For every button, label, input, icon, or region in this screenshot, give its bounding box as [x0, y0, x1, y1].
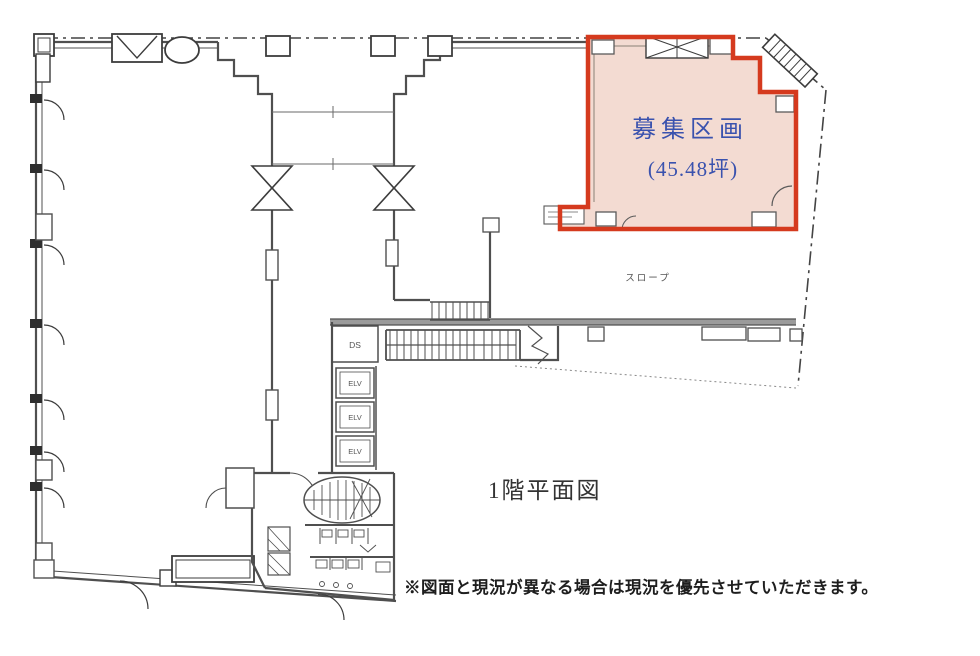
door-swing-arc	[120, 581, 148, 609]
exterior-ramp	[763, 34, 818, 87]
oval-symbol	[165, 37, 199, 63]
unit-top-double-door	[646, 36, 708, 58]
toilet-row-1	[305, 525, 394, 552]
double-door-symbols	[252, 166, 414, 210]
elevator-label-1: ELV	[348, 379, 362, 388]
spiral-stair	[304, 477, 380, 523]
slope-room: スロープ	[330, 218, 802, 388]
ground-line	[515, 366, 796, 388]
slope-room-label: スロープ	[625, 273, 670, 284]
unit-name-label: 募集区画	[632, 116, 748, 143]
floor-title: 1階平面図	[488, 478, 602, 503]
ds-label: DS	[349, 340, 361, 350]
bottom-wall-features	[120, 556, 344, 620]
elevator-label-3: ELV	[348, 447, 362, 456]
scanned-floorplan-page: 募集区画 (45.48坪) スロープ	[0, 0, 980, 656]
elevator-label-2: ELV	[348, 413, 362, 422]
unit-area-label: (45.48坪)	[648, 157, 738, 181]
door-swing-arcs	[44, 100, 64, 508]
service-shafts	[268, 527, 290, 575]
disclaimer-text: ※図面と現況が異なる場合は現況を優先させていただきます。	[404, 577, 878, 597]
toilet-row-2	[310, 557, 394, 589]
main-stair	[386, 330, 520, 360]
highlighted-unit: 募集区画 (45.48坪)	[544, 36, 796, 230]
break-line	[528, 326, 548, 364]
top-boundary-columns	[266, 36, 452, 56]
floor-plan-drawing: 募集区画 (45.48坪) スロープ	[0, 0, 980, 656]
vestibule-thresholds	[272, 106, 394, 170]
upper-stair	[430, 302, 490, 320]
